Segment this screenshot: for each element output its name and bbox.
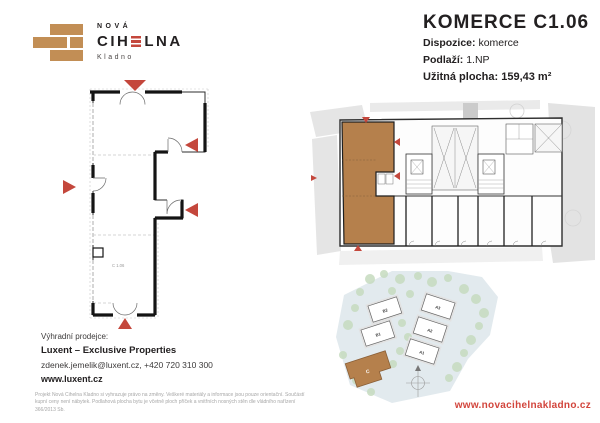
wall-niche: [93, 248, 103, 257]
entrance-arrow-bottom: [118, 318, 132, 329]
unit-header: KOMERCE C1.06 Dispozice: komerce Podlaží…: [423, 13, 595, 84]
page-title: KOMERCE C1.06: [423, 13, 595, 32]
brand-logo: NOVÁ CIHLNA Kladno: [33, 22, 183, 62]
legal-disclaimer: Projekt Nová Cihelna Kladno si vyhrazuje…: [35, 392, 313, 414]
brand-city: Kladno: [97, 54, 183, 61]
contact-heading: Výhradní prodejce:: [41, 332, 213, 341]
contact-block: Výhradní prodejce: Luxent – Exclusive Pr…: [41, 332, 213, 384]
spec-plocha: Užitná plocha: 159,43 m²: [423, 71, 595, 84]
site-plan: B2 B1 A3 A2 A1 C: [330, 263, 515, 411]
contact-company: Luxent – Exclusive Properties: [41, 345, 213, 356]
spec-dispozice: Dispozice: komerce: [423, 37, 595, 49]
entrance-arrow-right-lower: [185, 203, 198, 217]
entrance-arrow-top: [124, 80, 146, 91]
brand-name-top: NOVÁ: [97, 23, 183, 30]
unit-outline: [93, 92, 205, 315]
atrium-roof: [432, 126, 478, 190]
brand-name-main: CIHLNA: [97, 33, 183, 50]
contact-website-link[interactable]: www.luxent.cz: [41, 374, 213, 384]
brand-wordmark: NOVÁ CIHLNA Kladno: [97, 22, 183, 62]
building-key-plan: [310, 98, 595, 270]
brick-logo-icon: [33, 22, 85, 62]
project-website-link[interactable]: www.novacihelnakladno.cz: [455, 400, 591, 411]
entrance-arrow-left: [63, 180, 76, 194]
unit-label: C 1.06: [112, 263, 125, 268]
spec-podlazi: Podlaží: 1.NP: [423, 54, 595, 66]
contact-email-phone[interactable]: zdenek.jemelik@luxent.cz, +420 720 310 3…: [41, 360, 213, 370]
flyer-page: NOVÁ CIHLNA Kladno KOMERCE C1.06 Dispozi…: [0, 0, 600, 423]
unit-floor-plan: C 1.06: [60, 75, 210, 347]
logo-e-icon: [131, 36, 141, 47]
